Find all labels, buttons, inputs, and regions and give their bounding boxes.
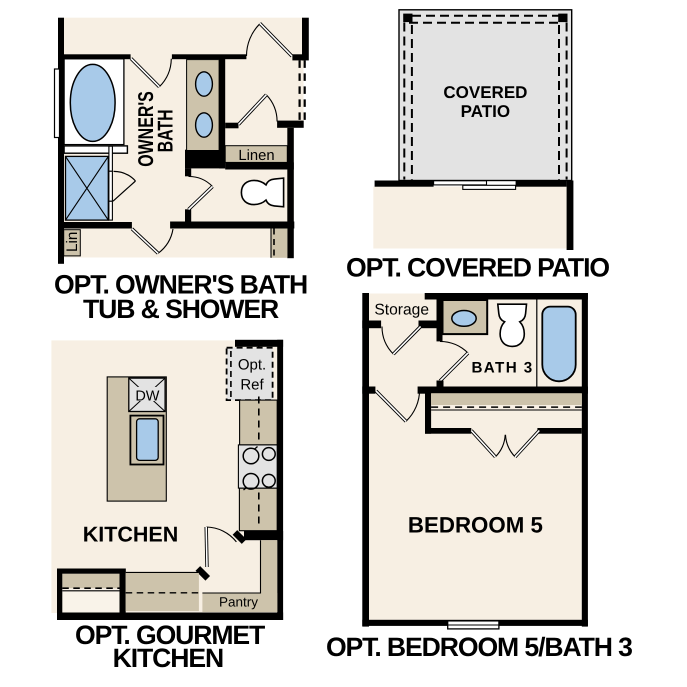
svg-text:PATIO: PATIO [461, 102, 510, 121]
svg-text:Lin: Lin [64, 232, 81, 252]
svg-text:Opt.: Opt. [238, 357, 266, 374]
svg-text:DW: DW [135, 388, 159, 404]
svg-text:Ref: Ref [240, 377, 264, 394]
svg-text:Storage: Storage [374, 301, 429, 318]
svg-text:Pantry: Pantry [219, 595, 258, 610]
svg-text:KITCHEN: KITCHEN [113, 643, 224, 673]
svg-text:OPT. BEDROOM 5/BATH 3: OPT. BEDROOM 5/BATH 3 [326, 632, 632, 662]
svg-text:OPT. COVERED PATIO: OPT. COVERED PATIO [346, 252, 609, 282]
svg-text:BATH: BATH [154, 109, 178, 152]
svg-text:BATH 3: BATH 3 [471, 360, 533, 377]
svg-text:BEDROOM 5: BEDROOM 5 [408, 513, 543, 538]
svg-text:TUB & SHOWER: TUB & SHOWER [83, 294, 279, 324]
svg-text:Linen: Linen [238, 148, 274, 164]
svg-text:KITCHEN: KITCHEN [83, 523, 179, 547]
svg-text:COVERED: COVERED [443, 83, 527, 102]
